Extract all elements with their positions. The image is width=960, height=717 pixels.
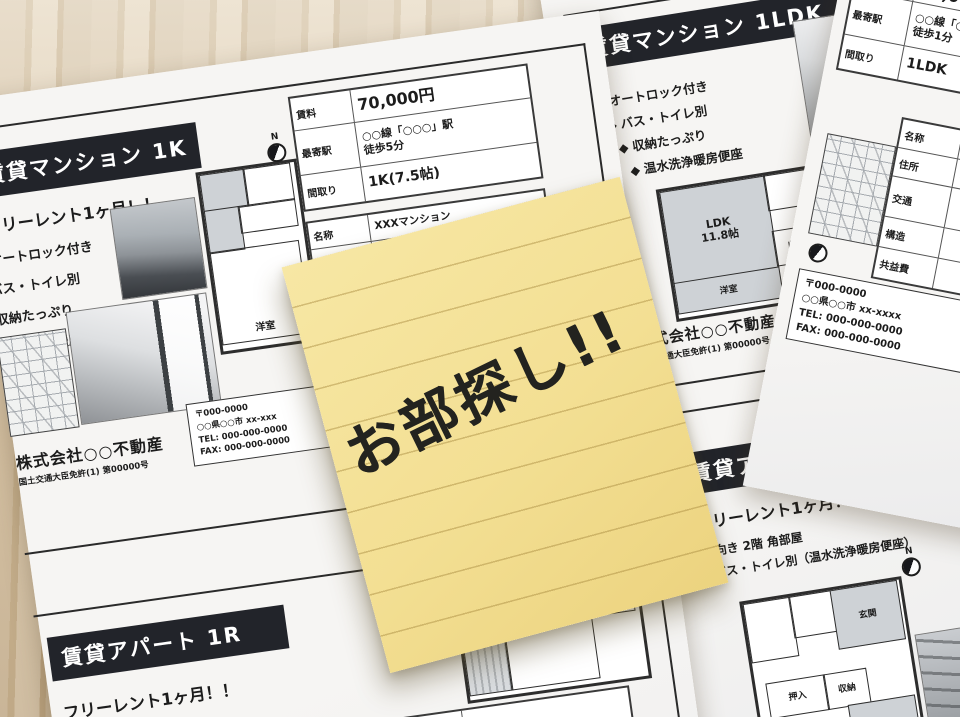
compass-n-label: N xyxy=(270,133,279,143)
compass-dial-icon xyxy=(807,242,829,264)
feature-item: ◆オートロック付き xyxy=(0,236,94,271)
listing-1k-title: 賃貸マンション 1K xyxy=(0,132,189,190)
compass-dial-icon xyxy=(266,142,287,163)
spec-table: 賃料 70,000円 最寄駅 ○○線「○○○」駅 徒歩5分 間取り 1K(7.5… xyxy=(288,63,544,212)
wood-desk-background: 賃貸マンション 1LDK ◆オートロック付き ◆バス・トイレ別 ◆収納たっぷり … xyxy=(0,0,960,717)
compass-icon: N xyxy=(265,132,288,163)
spec-table: 賃料 80,000円 最寄駅 ○○線「○○○」駅 徒歩1分 間取り 1LDK xyxy=(836,0,960,128)
feature-item: ◆バス・トイレ別 xyxy=(0,268,81,301)
diamond-bullet-icon: ◆ xyxy=(629,162,641,178)
listing-1r-header: 賃貸アパート 1R xyxy=(47,605,290,682)
compass-icon: N xyxy=(899,546,922,578)
compass-icon xyxy=(807,242,829,264)
listing-1r-title: 賃貸アパート 1R xyxy=(60,618,244,673)
floorplan-2k: 玄関 押入 収納 洋室6帖 和室6帖 xyxy=(739,576,939,717)
plan-oshiire-cell: 押入 xyxy=(765,674,830,717)
feature-item: ◆収納たっぷり xyxy=(0,299,74,331)
area-map xyxy=(0,328,80,437)
kitchen-photo xyxy=(110,197,208,300)
building-photo xyxy=(914,614,960,717)
diamond-bullet-icon: ◆ xyxy=(618,140,630,156)
compass-n-label: N xyxy=(905,547,914,557)
listing-1k-header: 賃貸マンション 1K xyxy=(0,122,202,199)
compass-dial-icon xyxy=(900,556,922,578)
sticky-note-handwriting: お部探し!! xyxy=(329,285,638,492)
listing-1r-promo: フリーレント1ヶ月！！ xyxy=(62,676,240,717)
listing-1ldk-title: 賃貸マンション 1LDK xyxy=(584,0,826,64)
company-info: 株式会社○○不動産 国土交通大臣免許(1) 第00000号 xyxy=(14,430,167,488)
plan-entrance-cell: 玄関 xyxy=(830,580,907,650)
